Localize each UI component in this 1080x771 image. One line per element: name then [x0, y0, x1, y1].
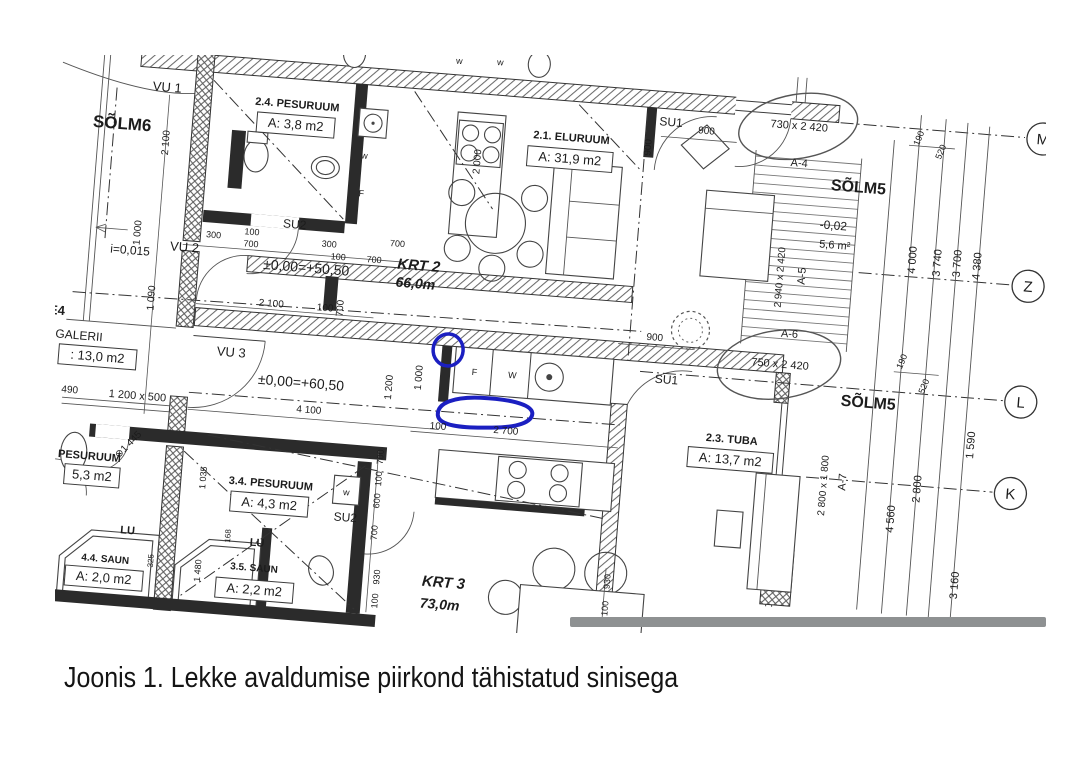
label-dim-900-top: 900: [698, 125, 716, 137]
label-door-2940: 2 940 x 2 420: [773, 246, 789, 308]
label-dim-930-b: 930: [601, 574, 612, 590]
label-dim-300-a: 300: [206, 229, 222, 240]
label-room-pes53-area: 5,3 m2: [72, 466, 113, 484]
label-dim-700-e: 700: [369, 525, 380, 541]
label-dim-930-a: 930: [371, 569, 382, 585]
label-dim-490: 490: [61, 384, 79, 396]
label-dim-1035: 1 035: [197, 466, 209, 489]
label-sect-e4: E4: [49, 302, 67, 318]
label-room-21: 2.1. ELURUUM: [533, 129, 610, 147]
label-grid-dim-4380: 4 380: [970, 252, 984, 280]
label-dim-700-c: 700: [390, 238, 406, 249]
label-a4: A-4: [790, 157, 808, 170]
label-grid-dim-4560: 4 560: [884, 505, 898, 533]
label-dim-520-top: 520: [933, 143, 948, 161]
label-dim-1000-left: 1 000: [132, 219, 145, 245]
label-solm5-mid: SÕLM5: [840, 390, 897, 414]
label-dim-100-d: 100: [373, 471, 384, 487]
label-dim-100-f: 100: [599, 600, 610, 616]
label-dim-190-mid: 190: [894, 353, 909, 371]
label-solm5-top: SÕLM5: [830, 174, 887, 198]
stair-tread: [743, 309, 849, 318]
label-krt2: KRT 2: [397, 256, 442, 276]
label-appl-w-su2: w: [342, 487, 351, 498]
label-vu2: VU 2: [170, 238, 200, 255]
label-dim-1480: 1 480: [192, 559, 204, 582]
separator-bar: [570, 617, 1046, 627]
label-dim-100-a: 100: [244, 226, 260, 237]
label-grid-dim-3700: 3 700: [951, 249, 965, 277]
label-su2-top: SU2: [283, 216, 308, 232]
label-krt2-area: 66,0m: [395, 274, 436, 293]
label-fixt-w-top1: w: [455, 56, 464, 67]
grid-M-label: M: [1036, 131, 1050, 149]
label-appl-f-kitchen: F: [358, 188, 365, 198]
label-dim-520-mid: 520: [916, 377, 931, 395]
scan-area: MZLK SÕLM6VU 12 1001 000i=0,015VU 21 090…: [20, 13, 1063, 678]
grid-bubbles: MZLK: [993, 121, 1060, 511]
stair-tread: [755, 165, 861, 174]
label-vu3: VU 3: [216, 343, 246, 360]
label-su1-mid: SU1: [654, 372, 679, 388]
label-room-34: 3.4. PESURUUM: [228, 475, 313, 494]
label-a6: A-6: [780, 328, 798, 341]
label-dim-168: 168: [223, 528, 233, 543]
label-dim-100-c: 100: [429, 421, 447, 433]
label-dim-4100: 4 100: [296, 404, 322, 417]
label-grid-dim-3160: 3 160: [948, 571, 962, 599]
floor-plan-scan: MZLK SÕLM6VU 12 1001 000i=0,015VU 21 090…: [0, 0, 1080, 771]
label-dim-700-mid: 700: [334, 299, 346, 317]
label-grid-dim-3740: 3 740: [931, 249, 945, 277]
label-dim-700-d: 700: [375, 449, 386, 465]
walls: [20, 18, 842, 661]
label-vu1: VU 1: [152, 78, 182, 95]
grid-K-label: K: [1005, 486, 1016, 504]
label-room-24: 2.4. PESURUUM: [255, 96, 340, 115]
label-dim-2100-left: 2 100: [160, 129, 173, 155]
label-dim-325: 325: [146, 553, 156, 568]
label-grid-dim-1590: 1 590: [964, 431, 978, 459]
label-grid-dim-4000: 4 000: [906, 246, 920, 274]
label-lu-2: LU: [249, 537, 265, 550]
label-door-2800: 2 800 x 1 800: [816, 454, 832, 516]
label-grid-dim-2800: 2 800: [910, 475, 924, 503]
label-su1-top: SU1: [659, 114, 684, 130]
leak-annotation-area: [437, 394, 533, 432]
label-krt3-area: 73,0m: [419, 595, 460, 614]
label-dim-700-b: 700: [366, 254, 382, 265]
label-su2-bottom: SU2: [333, 509, 358, 525]
label-dim-2700: 2 700: [493, 425, 519, 438]
label-dim-1000-v: 1 000: [413, 364, 426, 390]
label-fixt-w-top2: w: [496, 57, 505, 68]
label-dim-900-mid: 900: [646, 332, 664, 344]
label-lu-1: LU: [120, 524, 136, 537]
label-krt3: KRT 3: [421, 573, 466, 593]
label-dim-1200-v: 1 200: [383, 374, 396, 400]
grid-L-label: L: [1016, 394, 1026, 412]
label-dim-1090-left: 1 090: [145, 285, 158, 311]
stair-tread: [744, 300, 850, 309]
label-room-44: 4.4. SAUN: [81, 552, 130, 567]
stair-tread: [745, 291, 851, 300]
label-dim-2100-mid: 2 100: [258, 298, 284, 311]
label-dim-700-a: 700: [243, 238, 259, 249]
label-stairs-area: 5,6 m²: [819, 238, 851, 252]
label-dim-2000-v: 2 000: [471, 148, 484, 174]
label-dim-900-v: 900: [642, 138, 654, 156]
label-dim-600: 600: [371, 493, 382, 509]
document-page: MZLK SÕLM6VU 12 1001 000i=0,015VU 21 090…: [0, 0, 1080, 771]
label-dim-300-b: 300: [321, 239, 337, 250]
label-level-stairs: -0,02: [819, 217, 848, 233]
label-a5: A-5: [796, 267, 809, 285]
label-room-35: 3.5. SAUN: [230, 561, 279, 576]
tilted-drawing: MZLK SÕLM6VU 12 1001 000i=0,015VU 21 090…: [20, 13, 1063, 678]
label-dim-190-top: 190: [911, 129, 926, 147]
stair-tread: [743, 317, 849, 326]
label-galerii: GALERII: [55, 326, 103, 344]
label-slope: i=0,015: [110, 242, 151, 259]
label-solm6: SÕLM6: [92, 111, 152, 136]
grid-Z-label: Z: [1023, 278, 1034, 296]
label-room-23: 2.3. TUBA: [705, 432, 758, 448]
label-level-krt3: ±0,00=+60,50: [257, 371, 345, 394]
label-dim-100-e: 100: [369, 593, 380, 609]
label-appl-w-kitchen: w: [360, 150, 369, 161]
figure-caption: Joonis 1. Lekke avaldumise piirkond tähi…: [64, 662, 678, 695]
label-dim-100-mid: 100: [316, 302, 334, 314]
label-counter-w: W: [508, 370, 518, 381]
label-a7: A-7: [836, 473, 849, 491]
